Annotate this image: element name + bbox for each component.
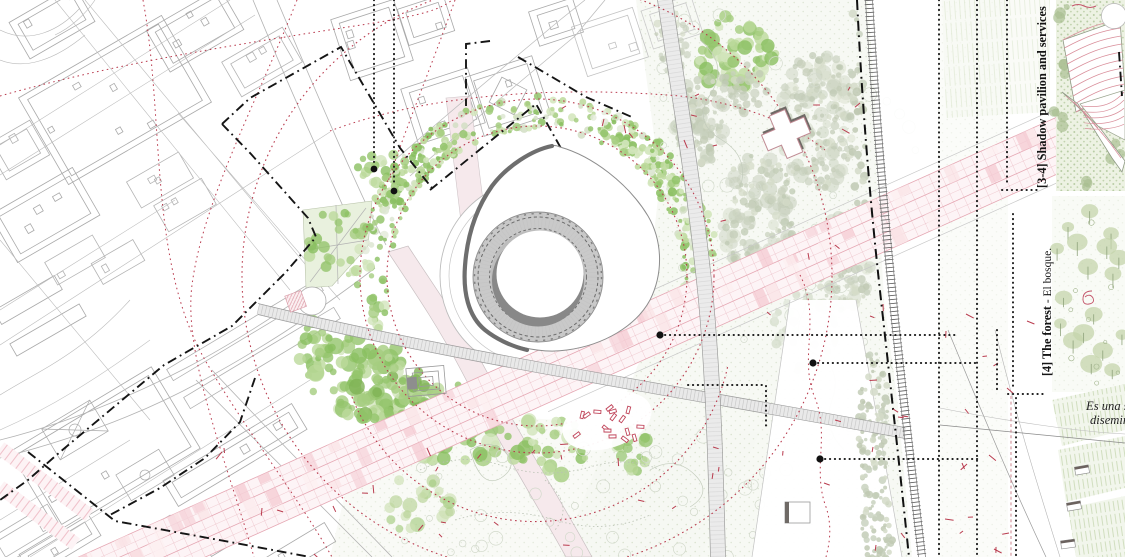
svg-text:[3-4] Shadow pavilion and serv: [3-4] Shadow pavilion and services	[1035, 6, 1049, 188]
svg-text:Es una se: Es una se	[1085, 399, 1125, 413]
svg-text:disemin: disemin	[1090, 413, 1125, 427]
svg-text:[4] The forest - El bosque.: [4] The forest - El bosque.	[1040, 248, 1054, 376]
